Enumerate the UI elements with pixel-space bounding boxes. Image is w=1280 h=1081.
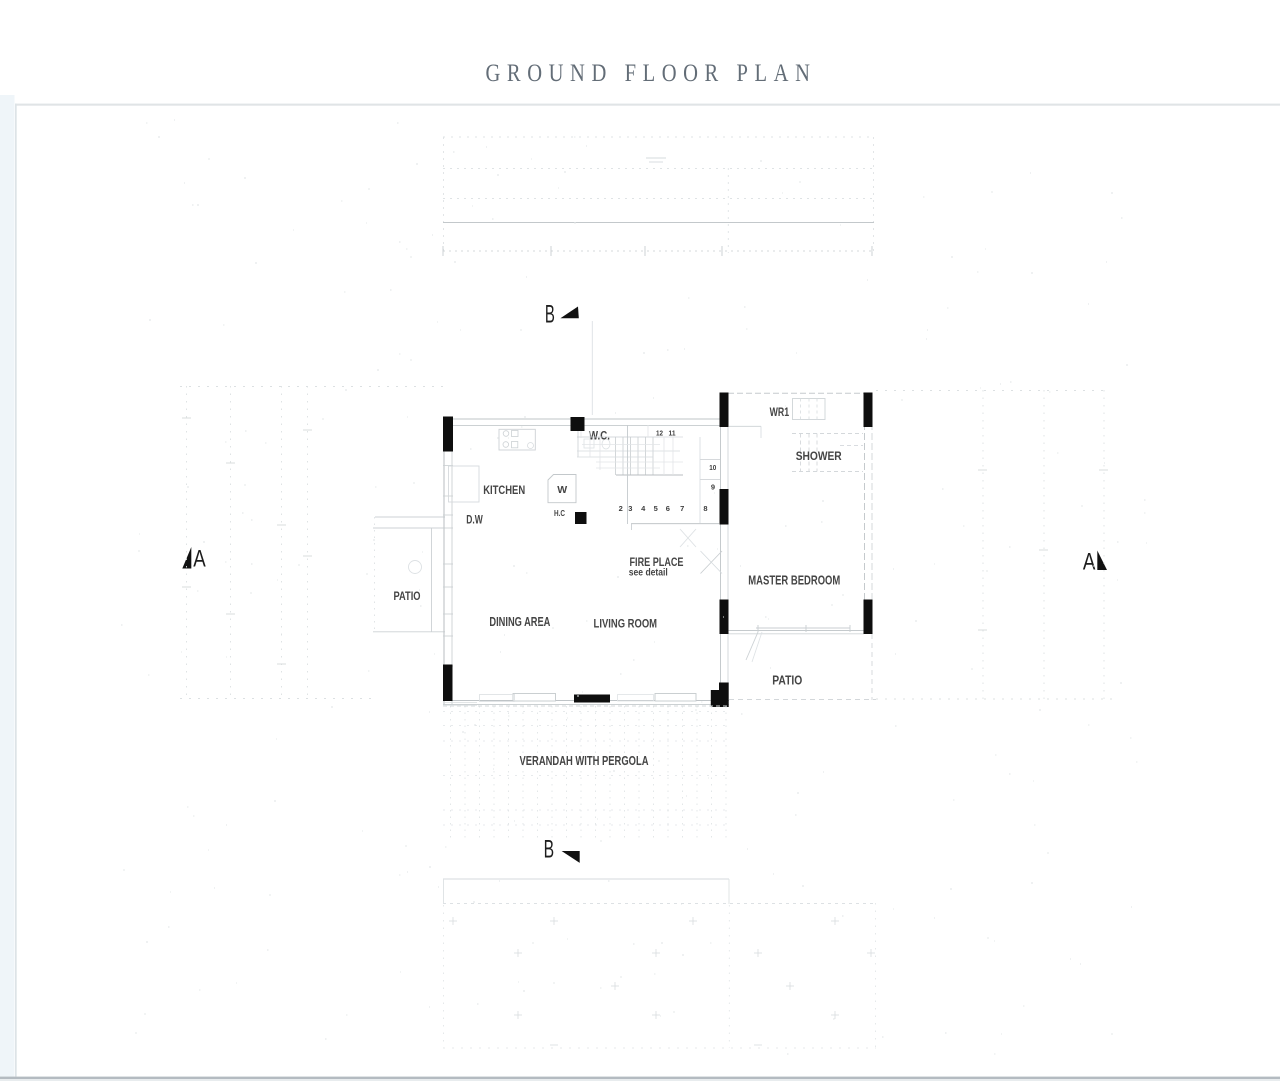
svg-text:GROUND FLOOR PLAN: GROUND FLOOR PLAN <box>486 60 817 87</box>
svg-text:PATIO: PATIO <box>772 673 802 687</box>
svg-text:5: 5 <box>654 504 658 513</box>
svg-text:B: B <box>545 300 555 328</box>
svg-text:8: 8 <box>703 504 707 513</box>
svg-text:11: 11 <box>669 429 676 438</box>
svg-text:KITCHEN: KITCHEN <box>483 483 525 497</box>
svg-text:VERANDAH WITH PERGOLA: VERANDAH WITH PERGOLA <box>520 754 649 768</box>
svg-text:9: 9 <box>711 482 715 491</box>
svg-text:W: W <box>557 484 567 496</box>
svg-text:LIVING ROOM: LIVING ROOM <box>594 617 658 631</box>
svg-text:3: 3 <box>628 504 632 513</box>
svg-text:WR1: WR1 <box>770 407 790 419</box>
svg-text:2: 2 <box>619 504 623 513</box>
svg-text:A: A <box>193 545 206 572</box>
svg-text:H.C: H.C <box>554 508 565 518</box>
svg-text:7: 7 <box>680 504 684 513</box>
svg-text:B: B <box>544 835 555 863</box>
svg-text:6: 6 <box>666 504 670 513</box>
svg-text:SHOWER: SHOWER <box>796 449 842 463</box>
svg-text:PATIO: PATIO <box>394 589 421 603</box>
svg-text:see detail: see detail <box>629 567 668 578</box>
svg-text:A: A <box>1083 549 1096 576</box>
svg-text:DINING AREA: DINING AREA <box>489 615 550 629</box>
svg-text:12: 12 <box>656 429 663 438</box>
svg-text:10: 10 <box>709 463 716 472</box>
svg-text:W.C.: W.C. <box>589 428 610 442</box>
svg-text:D.W: D.W <box>466 513 483 527</box>
svg-text:MASTER BEDROOM: MASTER BEDROOM <box>748 573 840 587</box>
